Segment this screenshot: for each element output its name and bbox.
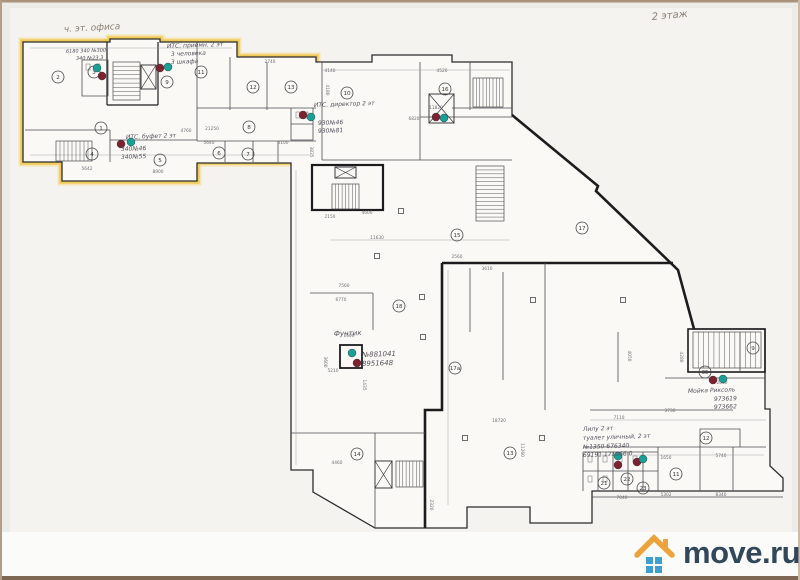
dimension-label: 4140	[325, 68, 336, 74]
dimension-label: 4460	[332, 460, 343, 466]
dimension-label: 4050	[626, 351, 632, 362]
svg-text:21: 21	[600, 481, 608, 487]
svg-text:18: 18	[395, 304, 403, 310]
handwritten-note: 340№55	[121, 153, 147, 161]
handwritten-note: Фунтик	[334, 329, 363, 338]
svg-text:12: 12	[249, 85, 256, 91]
move-ru-logo: move.ru	[634, 533, 800, 573]
dimension-label: 8900	[153, 169, 164, 175]
svg-text:2: 2	[56, 75, 60, 81]
handwritten-note: 3 человека	[171, 50, 207, 58]
handwritten-note: 930№81	[318, 127, 344, 135]
dimension-label: 6820	[409, 116, 420, 122]
floor-plan-drawing: 2125056404100383556428900476027404140452…	[0, 0, 800, 580]
dimension-label: 1435	[361, 380, 367, 391]
handwritten-note: 930№46	[318, 119, 344, 127]
dimension-label: 11260	[519, 443, 525, 457]
dimension-label: 7560	[339, 283, 350, 289]
dimension-label: 3835	[308, 147, 314, 158]
marker-dot-red	[353, 359, 361, 367]
marker-dot-red	[614, 461, 622, 469]
handwritten-note: 8951648	[362, 359, 394, 368]
dimension-label: 4100	[278, 140, 289, 146]
handwritten-note: 340№46	[121, 145, 147, 153]
dimension-label: 5642	[82, 166, 93, 172]
svg-text:22: 22	[623, 477, 630, 483]
marker-dot-teal	[440, 114, 448, 122]
handwritten-note: 3 шкафа	[171, 58, 199, 66]
svg-text:12: 12	[702, 436, 709, 442]
listing-photo-floor-plan: 2125056404100383556428900476027404140452…	[0, 0, 800, 580]
dimension-label: 3730	[665, 408, 676, 414]
svg-text:13: 13	[506, 451, 514, 457]
window-square	[646, 557, 653, 564]
dimension-label: 4760	[181, 128, 192, 134]
svg-text:16: 16	[441, 87, 449, 93]
dimension-label: 7110	[614, 415, 625, 421]
svg-text:10: 10	[343, 91, 351, 97]
svg-text:35: 35	[701, 370, 709, 376]
dimension-label: 2740	[265, 59, 276, 65]
dimension-label: 1650	[661, 455, 672, 461]
dimension-label: 4520	[437, 68, 448, 74]
svg-text:23: 23	[639, 486, 647, 492]
marker-dot-red	[299, 111, 307, 119]
dimension-label: 4180	[324, 85, 330, 96]
dimension-label: 11630	[370, 235, 384, 241]
dimension-label: 2320	[428, 500, 434, 511]
marker-dot-teal	[348, 349, 356, 357]
dimension-label: 2560	[452, 254, 463, 260]
move-ru-house-icon	[634, 533, 676, 573]
marker-dot-teal	[719, 375, 727, 383]
svg-text:7: 7	[246, 152, 250, 158]
window-square	[655, 557, 662, 564]
svg-text:14: 14	[353, 452, 361, 458]
dimension-label: 5210	[328, 368, 339, 374]
svg-text:5: 5	[158, 158, 162, 164]
svg-text:6: 6	[217, 151, 221, 157]
dimension-label: 6770	[336, 297, 347, 303]
handwritten-note: №881041	[361, 350, 396, 359]
window-square	[655, 566, 662, 573]
svg-text:15: 15	[453, 233, 461, 239]
svg-text:1: 1	[99, 126, 103, 132]
dimension-label: 2150	[325, 214, 336, 220]
dimension-label: 8340	[716, 492, 727, 498]
dimension-label: 11820	[429, 105, 443, 111]
dimension-label: 18720	[492, 418, 506, 424]
dimension-label: 4280	[678, 352, 684, 363]
dimension-label: 4600	[362, 210, 373, 216]
marker-dot-teal	[307, 113, 315, 121]
dimension-label: 3600	[322, 357, 328, 368]
svg-text:8: 8	[247, 125, 251, 131]
chimney-shape	[663, 539, 668, 548]
dimension-label: 7040	[617, 495, 628, 501]
handwritten-note: Лилу 2 эт	[582, 425, 614, 433]
marker-dot-red	[156, 64, 164, 72]
svg-text:9: 9	[751, 346, 755, 352]
svg-text:13: 13	[287, 85, 295, 91]
marker-dot-teal	[93, 64, 101, 72]
marker-dot-red	[432, 113, 440, 121]
dimension-label: 5302	[661, 492, 672, 498]
handwritten-note: 973619	[714, 395, 737, 403]
handwritten-note: 973662	[714, 403, 737, 411]
svg-text:9: 9	[165, 80, 169, 86]
marker-dot-teal	[639, 455, 647, 463]
marker-dot-red	[98, 72, 106, 80]
dimension-label: 3610	[482, 266, 493, 272]
window-square	[646, 566, 653, 573]
svg-text:11: 11	[197, 70, 205, 76]
dimension-label: 5740	[716, 453, 727, 459]
svg-text:17: 17	[578, 226, 586, 232]
svg-text:17а: 17а	[450, 366, 461, 372]
dimension-label: 21250	[205, 126, 219, 132]
dimension-label: 5640	[204, 140, 215, 146]
handwritten-note: 340 №23.3	[76, 55, 104, 62]
move-ru-wordmark: move.ru	[683, 533, 800, 573]
svg-text:4: 4	[90, 152, 94, 158]
svg-text:11: 11	[672, 472, 680, 478]
marker-dot-red	[709, 376, 717, 384]
